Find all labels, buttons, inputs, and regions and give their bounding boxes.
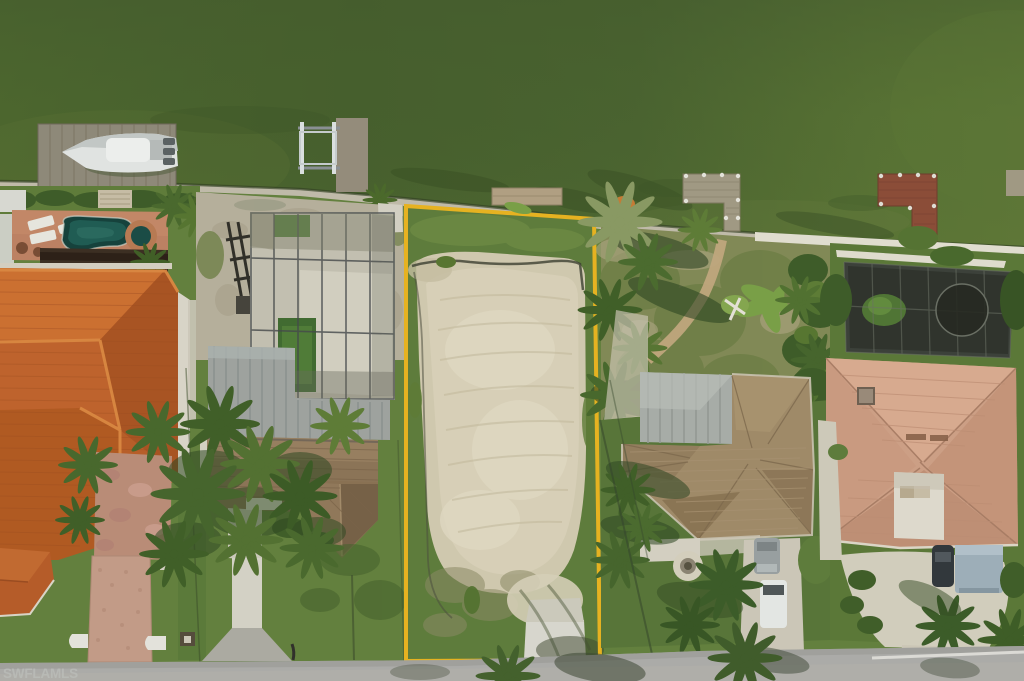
svg-text:SWFLAMLS: SWFLAMLS <box>3 666 78 681</box>
